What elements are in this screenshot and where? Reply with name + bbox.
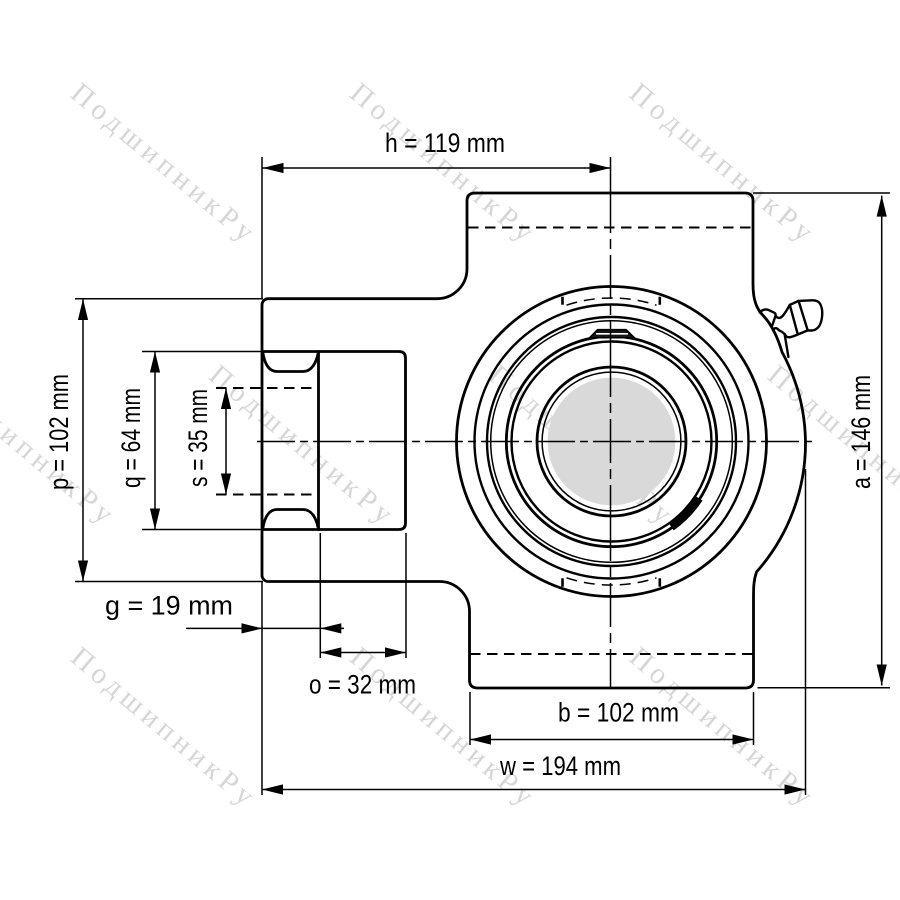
svg-text:q = 64 mm: q = 64 mm bbox=[116, 388, 146, 488]
svg-text:w = 194 mm: w = 194 mm bbox=[499, 751, 621, 781]
svg-text:o = 32 mm: o = 32 mm bbox=[309, 670, 416, 700]
svg-text:h = 119 mm: h = 119 mm bbox=[385, 128, 505, 158]
svg-text:s = 35 mm: s = 35 mm bbox=[183, 389, 213, 487]
svg-text:g = 19 mm: g = 19 mm bbox=[105, 591, 233, 621]
svg-text:b = 102 mm: b = 102 mm bbox=[558, 698, 679, 728]
svg-text:a = 146 mm: a = 146 mm bbox=[846, 375, 876, 489]
svg-text:p = 102 mm: p = 102 mm bbox=[44, 374, 74, 490]
